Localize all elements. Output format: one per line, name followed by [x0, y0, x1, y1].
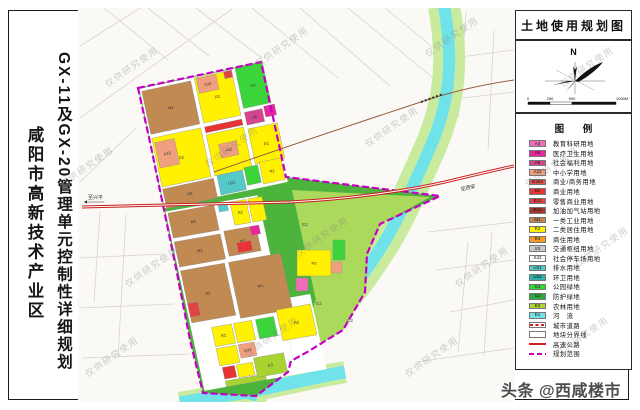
legend-row: 高速公路 — [516, 339, 631, 349]
legend-swatch — [529, 331, 546, 338]
parcel-label: R2 — [311, 261, 317, 266]
legend-swatch: E2 — [529, 303, 546, 310]
north-label: N — [516, 47, 631, 57]
legend-label: 规划范围 — [553, 349, 580, 358]
legend-row: E2农林用地 — [516, 301, 631, 311]
legend-label: 社会福利用地 — [553, 158, 594, 167]
legend-title: 图 例 — [516, 121, 631, 135]
legend-label: 环卫用地 — [553, 273, 580, 282]
credit-watermark: 头条 @西咸楼市 — [501, 377, 639, 401]
legend-swatch: U22 — [529, 274, 546, 281]
parcel-B1 — [222, 365, 237, 379]
parcel-B11 — [224, 70, 233, 79]
parcel-A3 — [296, 278, 308, 291]
scale-tick-label: 0 — [527, 96, 530, 101]
plan-title: GX-11及GX-20管理单元控制性详细规划 — [52, 52, 74, 371]
parcel-G1 — [333, 240, 345, 260]
legend-label: 防护绿地 — [553, 292, 580, 301]
legend-row: 地块分界线 — [516, 330, 631, 340]
legend-swatch: B1B2 — [529, 179, 546, 186]
legend-row: S3交通枢纽用地 — [516, 244, 631, 254]
district-title: 咸阳市高新技术产业区 — [22, 126, 46, 321]
legend-swatch: S42 — [529, 255, 546, 262]
legend-label: 二类居住用地 — [553, 225, 594, 234]
legend-label: 零售商业用地 — [553, 197, 594, 206]
legend-label: 商业/商务用地 — [553, 177, 596, 186]
legend-swatch: B1 — [529, 188, 546, 195]
scale-tick-label: 500 — [569, 96, 576, 101]
legend-box: 图 例 A3教育科研用地A5医疗卫生用地A6社会福利用地A33中小学用地B1B2… — [515, 113, 632, 370]
legend-label: 教育科研用地 — [553, 139, 594, 148]
legend-row: U22环卫用地 — [516, 273, 631, 283]
scale-segment — [528, 102, 550, 105]
parcel-G1 — [255, 316, 277, 338]
legend-swatch: A5 — [529, 150, 546, 157]
legend-row: 规划范围 — [516, 349, 631, 359]
legend-label: 交通枢纽用地 — [553, 244, 594, 253]
legend-label: 中小学用地 — [553, 168, 587, 177]
legend-row: G1公园绿地 — [516, 282, 631, 292]
legend-row: M1一类工业用地 — [516, 215, 631, 225]
legend-label: 河 流 — [553, 311, 573, 320]
legend-row: R4商住用地 — [516, 234, 631, 244]
parcel-R2 — [233, 320, 255, 342]
legend-label: 公园绿地 — [553, 282, 580, 291]
legend-row: U21排水用地 — [516, 263, 631, 273]
legend-label: 医疗卫生用地 — [553, 149, 594, 158]
legend-row: A3教育科研用地 — [516, 139, 631, 149]
legend-label: 城市道路 — [553, 321, 580, 330]
legend-swatch: B11 — [529, 198, 546, 205]
legend-row: R2二类居住用地 — [516, 225, 631, 235]
legend-label: 地块分界线 — [553, 330, 587, 339]
legend-swatch: R2 — [529, 226, 546, 233]
legend-swatch: E1 — [529, 312, 546, 319]
legend-swatch: M1 — [529, 217, 546, 224]
parcel-R2 — [216, 345, 240, 366]
parcel-A33 — [331, 262, 342, 273]
road-label-left: 至兴平 — [88, 194, 103, 201]
legend-swatch — [529, 341, 546, 348]
zone-label: E2 — [302, 222, 308, 227]
compass-box: N 02505001000M — [515, 40, 632, 113]
legend-label: 高速公路 — [553, 340, 580, 349]
legend-label: 农林用地 — [553, 302, 580, 311]
map-title-box: 土地使用规划图 — [515, 10, 632, 40]
legend-row: A5医疗卫生用地 — [516, 149, 631, 159]
legend-swatch — [529, 351, 546, 358]
legend-label: 商住用地 — [553, 235, 580, 244]
legend-row: B1B2商业/商务用地 — [516, 177, 631, 187]
legend-row: G2防护绿地 — [516, 292, 631, 302]
compass-rose-icon — [540, 58, 610, 96]
legend-row: B11零售商业用地 — [516, 196, 631, 206]
legend-row: A6社会福利用地 — [516, 158, 631, 168]
legend-label: 加油加气站用地 — [553, 206, 601, 215]
parcel-A5 — [250, 225, 261, 235]
legend-row: B41加油加气站用地 — [516, 206, 631, 216]
scale-segment — [572, 102, 616, 105]
scale-tick-label: 250 — [547, 96, 554, 101]
legend-swatch: A33 — [529, 169, 546, 176]
parcel-R2 — [236, 362, 255, 377]
legend-swatch: A6 — [529, 160, 546, 167]
legend-label: 社会停车场用地 — [553, 254, 601, 263]
legend-swatch: G1 — [529, 284, 546, 291]
legend-label: 一类工业用地 — [553, 216, 594, 225]
legend-row: E1河 流 — [516, 311, 631, 321]
map-title: 土地使用规划图 — [521, 17, 626, 34]
land-use-map: M1R2A33G1R2A33R2A33A6R2M1U21R2M1R2M1M1M1… — [78, 8, 515, 402]
legend-row: 城市道路 — [516, 320, 631, 330]
scale-segment — [550, 102, 572, 105]
scale-bar: 02505001000M — [524, 93, 626, 109]
legend-row: A33中小学用地 — [516, 168, 631, 178]
legend-swatch — [529, 322, 546, 329]
legend-swatch: R4 — [529, 236, 546, 243]
legend-swatch: B41 — [529, 207, 546, 214]
legend-label: 商业用地 — [553, 187, 580, 196]
legend-label: 排水用地 — [553, 263, 580, 272]
legend-swatch: U21 — [529, 265, 546, 272]
legend-row: S42社会停车场用地 — [516, 254, 631, 264]
legend-row: B1商业用地 — [516, 187, 631, 197]
legend-rows: A3教育科研用地A5医疗卫生用地A6社会福利用地A33中小学用地B1B2商业/商… — [516, 139, 631, 359]
legend-swatch: A3 — [529, 140, 546, 147]
legend-swatch: S3 — [529, 245, 546, 252]
zone-label: E2 — [316, 301, 322, 306]
scale-tick-label: 1000M — [616, 96, 628, 101]
legend-swatch: G2 — [529, 293, 546, 300]
plan-sheet: GX-11及GX-20管理单元控制性详细规划 咸阳市高新技术产业区 M1R2A3… — [0, 0, 640, 410]
